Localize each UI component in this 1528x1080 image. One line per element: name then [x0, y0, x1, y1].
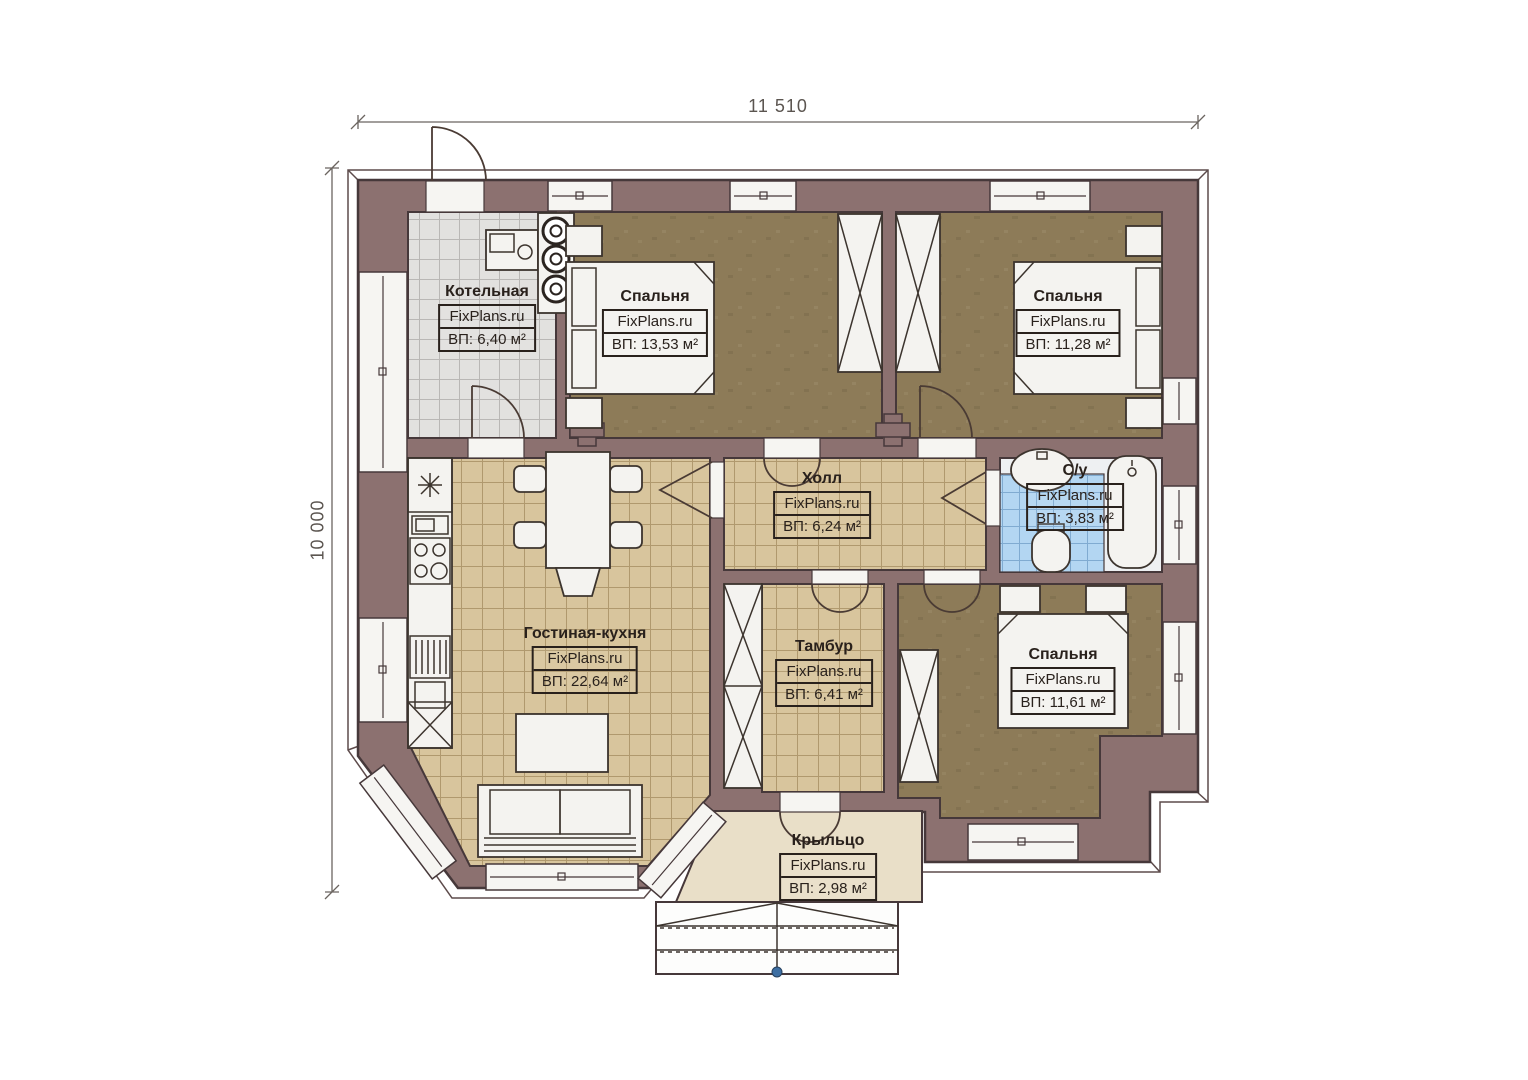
dimension-height-label: 10 000: [308, 499, 329, 560]
window-icon: [968, 824, 1078, 860]
dimension-width-label: 11 510: [748, 96, 808, 117]
window-icon: [1163, 622, 1196, 734]
watermark-text: FixPlans.ru: [1012, 669, 1113, 692]
watermark-text: FixPlans.ru: [781, 855, 875, 878]
room-label-bathroom: С/у FixPlans.ru ВП: 3,83 м²: [1026, 462, 1124, 531]
room-area: ВП: 6,40 м²: [440, 329, 534, 350]
room-label-hall: Холл FixPlans.ru ВП: 6,24 м²: [773, 470, 871, 539]
chair-icon: [556, 568, 600, 596]
chair-icon: [514, 466, 546, 492]
floor-plan-page: 11 510 10 000 Котельная FixPlans.ru ВП: …: [0, 0, 1528, 1080]
watermark-text: FixPlans.ru: [1028, 485, 1122, 508]
room-info-box: FixPlans.ru ВП: 22,64 м²: [532, 646, 638, 694]
room-info-box: FixPlans.ru ВП: 11,61 м²: [1010, 667, 1115, 715]
room-area: ВП: 2,98 м²: [781, 878, 875, 899]
room-name: С/у: [1026, 462, 1124, 480]
toilet-icon: [1032, 524, 1070, 572]
room-label-boiler: Котельная FixPlans.ru ВП: 6,40 м²: [438, 283, 536, 352]
floor-plan-drawing: [0, 0, 1528, 1080]
steps-marker-dot: [772, 967, 782, 977]
room-name: Крыльцо: [779, 832, 877, 850]
room-info-box: FixPlans.ru ВП: 3,83 м²: [1026, 483, 1124, 531]
sofa-icon: [478, 785, 642, 857]
wardrobe-icon: [896, 214, 940, 372]
window-icon: [548, 181, 612, 211]
room-label-bedroom-2: Спальня FixPlans.ru ВП: 11,28 м²: [1015, 288, 1120, 357]
watermark-text: FixPlans.ru: [604, 311, 706, 334]
room-label-bedroom-1: Спальня FixPlans.ru ВП: 13,53 м²: [602, 288, 708, 357]
room-name: Котельная: [438, 283, 536, 301]
room-name: Тамбур: [775, 638, 873, 656]
window-icon: [730, 181, 796, 211]
chair-icon: [514, 522, 546, 548]
room-area: ВП: 22,64 м²: [534, 671, 636, 692]
room-label-bedroom-3: Спальня FixPlans.ru ВП: 11,61 м²: [1010, 646, 1115, 715]
room-label-vestibule: Тамбур FixPlans.ru ВП: 6,41 м²: [775, 638, 873, 707]
room-area: ВП: 11,61 м²: [1012, 692, 1113, 713]
watermark-text: FixPlans.ru: [1017, 311, 1118, 334]
room-name: Спальня: [1010, 646, 1115, 664]
chair-icon: [610, 466, 642, 492]
watermark-text: FixPlans.ru: [440, 306, 534, 329]
room-info-box: FixPlans.ru ВП: 13,53 м²: [602, 309, 708, 357]
room-area: ВП: 11,28 м²: [1017, 334, 1118, 355]
chair-icon: [610, 522, 642, 548]
room-name: Спальня: [602, 288, 708, 306]
sink-cabinet-icon: [486, 230, 538, 270]
room-label-living-kitchen: Гостиная-кухня FixPlans.ru ВП: 22,64 м²: [524, 625, 647, 694]
room-area: ВП: 3,83 м²: [1028, 508, 1122, 529]
room-info-box: FixPlans.ru ВП: 6,41 м²: [775, 659, 873, 707]
room-area: ВП: 6,41 м²: [777, 684, 871, 705]
room-name: Спальня: [1015, 288, 1120, 306]
dining-table-icon: [546, 452, 610, 568]
room-info-box: FixPlans.ru ВП: 6,40 м²: [438, 304, 536, 352]
stairs-icon: [656, 902, 898, 977]
watermark-text: FixPlans.ru: [775, 493, 869, 516]
room-info-box: FixPlans.ru ВП: 2,98 м²: [779, 853, 877, 901]
watermark-text: FixPlans.ru: [777, 661, 871, 684]
window-icon: [486, 864, 638, 890]
wardrobe-icon: [900, 650, 938, 782]
watermark-text: FixPlans.ru: [534, 648, 636, 671]
room-area: ВП: 6,24 м²: [775, 516, 869, 537]
room-area: ВП: 13,53 м²: [604, 334, 706, 355]
room-info-box: FixPlans.ru ВП: 11,28 м²: [1015, 309, 1120, 357]
window-icon: [1163, 486, 1196, 564]
window-icon: [990, 181, 1090, 211]
wardrobe-icon: [724, 584, 762, 788]
window-icon: [359, 618, 407, 722]
room-info-box: FixPlans.ru ВП: 6,24 м²: [773, 491, 871, 539]
wardrobe-icon: [838, 214, 882, 372]
room-label-porch: Крыльцо FixPlans.ru ВП: 2,98 м²: [779, 832, 877, 901]
room-name: Гостиная-кухня: [524, 625, 647, 643]
window-icon: [359, 272, 407, 472]
room-name: Холл: [773, 470, 871, 488]
window-icon: [1163, 378, 1196, 424]
coffee-table-icon: [516, 714, 608, 772]
kitchen-counter: [408, 458, 452, 748]
